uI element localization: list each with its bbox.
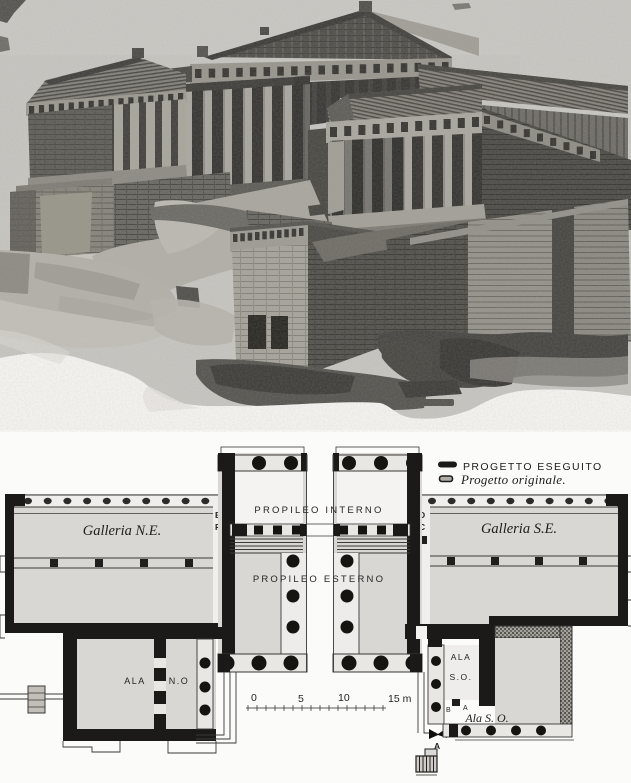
svg-text:15 m: 15 m bbox=[388, 693, 412, 705]
svg-text:ALA: ALA bbox=[124, 676, 146, 686]
svg-text:S.O.: S.O. bbox=[449, 672, 472, 682]
svg-text:0: 0 bbox=[251, 692, 257, 704]
svg-text:N.O: N.O bbox=[169, 676, 190, 686]
svg-text:Galleria N.E.: Galleria N.E. bbox=[83, 523, 162, 539]
svg-text:B: B bbox=[446, 707, 451, 714]
svg-text:PROPILEO ESTERNO: PROPILEO ESTERNO bbox=[253, 574, 385, 585]
svg-text:ALA: ALA bbox=[451, 652, 472, 662]
svg-text:5: 5 bbox=[298, 693, 304, 705]
svg-text:PROPILEO INTERNO: PROPILEO INTERNO bbox=[254, 505, 383, 516]
svg-text:Galleria S.E.: Galleria S.E. bbox=[481, 521, 557, 537]
svg-text:Ala S. O.: Ala S. O. bbox=[464, 711, 508, 725]
svg-text:10: 10 bbox=[338, 692, 350, 704]
svg-text:Progetto originale.: Progetto originale. bbox=[460, 472, 566, 487]
